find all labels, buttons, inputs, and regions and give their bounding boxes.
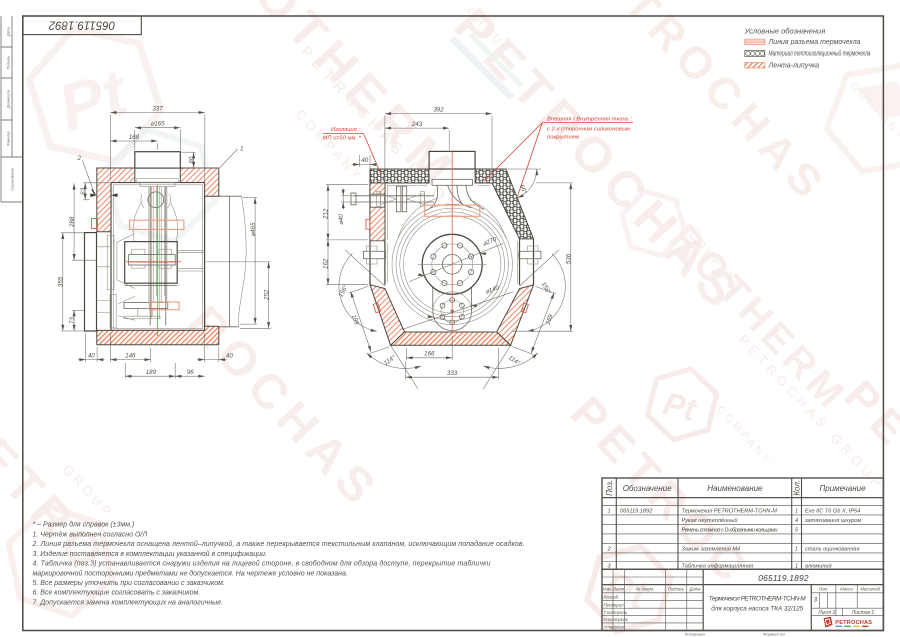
svg-text:7. Допускается замена комплект: 7. Допускается замена комплектующих на а… [33, 599, 224, 606]
svg-text:Наименование: Наименование [707, 484, 763, 493]
svg-text:Масса: Масса [840, 587, 853, 592]
svg-text:212: 212 [323, 208, 330, 220]
svg-text:Утвердил: Утвердил [604, 625, 625, 630]
svg-text:96: 96 [187, 369, 194, 376]
svg-text:покрытием: покрытием [547, 135, 579, 141]
svg-text:1. Чертёж выполнен согласно О/: 1. Чертёж выполнен согласно О/Л [33, 531, 148, 538]
svg-text:с 2-х сторонним силиконовым: с 2-х сторонним силиконовым [547, 127, 630, 133]
svg-text:⌀165: ⌀165 [150, 121, 165, 128]
svg-text:Разраб.: Разраб. [604, 595, 620, 600]
svg-text:Внешняя / Внутренняя ткань :: Внешняя / Внутренняя ткань : [547, 117, 632, 123]
svg-text:065119.1892: 065119.1892 [48, 18, 115, 30]
svg-text:3. Изделие поставляется в комп: 3. Изделие поставляется в комплектации у… [33, 550, 267, 558]
svg-text:Термочехол PETROTHERM-TCHN-M: Термочехол PETROTHERM-TCHN-M [682, 509, 778, 515]
svg-text:146: 146 [125, 352, 136, 359]
svg-text:065119.1892: 065119.1892 [620, 509, 653, 515]
svg-text:Лист: Лист [612, 586, 624, 591]
svg-text:Обозначение: Обозначение [623, 484, 673, 493]
svg-text:Согласование: Согласование [11, 168, 15, 191]
svg-text:Ехе IIС Т6 Gb X, IP54: Ехе IIС Т6 Gb X, IP54 [805, 509, 860, 515]
svg-text:40: 40 [88, 352, 95, 359]
svg-text:189: 189 [146, 369, 157, 376]
svg-text:5. Все размеры уточнить при со: 5. Все размеры уточнить при согласовании… [33, 580, 225, 587]
svg-text:2: 2 [77, 155, 82, 162]
svg-text:252: 252 [263, 289, 270, 301]
svg-text:Дата: Дата [688, 586, 701, 591]
svg-text:затягивания шнуром: затягивания шнуром [804, 518, 861, 524]
svg-text:168: 168 [129, 134, 140, 141]
svg-text:Проверил: Проверил [604, 602, 625, 607]
svg-text:065119.1892: 065119.1892 [758, 573, 809, 583]
svg-text:333: 333 [447, 370, 458, 377]
svg-text:392: 392 [433, 106, 444, 113]
svg-text:Лента-липучка: Лента-липучка [768, 62, 820, 69]
svg-text:2. Линия разъема термочехла ос: 2. Линия разъема термочехла оснащена лен… [32, 540, 525, 548]
svg-text:Должность: Должность [6, 90, 10, 110]
svg-text:для корпуса насоса ТКА 32/125: для корпуса насоса ТКА 32/125 [711, 604, 803, 612]
svg-text:243: 243 [411, 121, 423, 128]
svg-text:Материал теплоизоляционный тер: Материал теплоизоляционный термочехла [769, 50, 871, 58]
svg-text:40: 40 [361, 157, 368, 164]
svg-text:1: 1 [607, 509, 610, 515]
svg-text:Поз.: Поз. [605, 480, 614, 496]
svg-text:60: 60 [188, 156, 195, 163]
svg-text:сталь оцинкованная: сталь оцинкованная [805, 547, 860, 553]
svg-text:Линия разъема термочехла: Линия разъема термочехла [768, 39, 861, 46]
svg-text:маркировочной посторонними пре: маркировочной посторонними предметами не… [33, 569, 348, 577]
svg-text:Примечание: Примечание [819, 484, 866, 493]
svg-text:166: 166 [424, 351, 435, 358]
svg-text:Лит.: Лит. [818, 587, 829, 592]
svg-text:73: 73 [69, 317, 76, 324]
svg-text:6. Все комплектующие согласова: 6. Все комплектующие согласовать с заказ… [33, 590, 201, 597]
svg-text:* – Размер для справок (±3мм.): * – Размер для справок (±3мм.) [33, 521, 135, 529]
svg-text:Лист 1: Лист 1 [817, 610, 835, 616]
svg-text:Масштаб: Масштаб [861, 587, 881, 592]
svg-text:Кол.: Кол. [793, 480, 802, 496]
svg-text:МП s=50 мм. *: МП s=50 мм. * [323, 136, 362, 142]
svg-text:№ докум.: № докум. [636, 586, 654, 591]
svg-text:337: 337 [152, 105, 163, 112]
svg-text:288: 288 [69, 216, 76, 228]
svg-text:⌀465: ⌀465 [250, 222, 257, 237]
svg-text:4: 4 [795, 518, 798, 524]
svg-text:Изоляция :: Изоляция : [331, 127, 360, 133]
svg-text:Изм.: Изм. [603, 586, 612, 591]
svg-text:Подпись: Подпись [6, 56, 10, 70]
svg-text:Зажим заземления М4: Зажим заземления М4 [682, 547, 741, 553]
svg-text:162: 162 [323, 258, 330, 269]
svg-text:1: 1 [795, 547, 798, 553]
svg-text:Рукав неутеплённый: Рукав неутеплённый [682, 517, 738, 524]
svg-text:PETROCHAS: PETROCHAS [835, 620, 872, 626]
svg-text:Ремень стяжной с D-образными к: Ремень стяжной с D-образными кольцами [682, 527, 778, 534]
svg-text:Фамилия: Фамилия [6, 131, 10, 146]
svg-text:Условные обозначения: Условные обозначения [744, 27, 826, 36]
svg-text:Копировал: Копировал [685, 632, 706, 637]
svg-text:536: 536 [565, 253, 572, 264]
svg-text:40: 40 [226, 352, 233, 359]
svg-text:355: 355 [58, 276, 65, 287]
svg-text:Листов 1: Листов 1 [851, 610, 875, 616]
svg-text:63: 63 [80, 187, 87, 194]
svg-text:Н.контроль: Н.контроль [604, 617, 629, 622]
svg-text:4. Табличка (поз.3) устанавлив: 4. Табличка (поз.3) устанавливается снар… [33, 560, 491, 568]
svg-text:Дата: Дата [6, 27, 10, 37]
svg-text:алюминий: алюминий [805, 563, 832, 570]
svg-text:⌀40: ⌀40 [338, 214, 345, 225]
svg-text:Формат А2: Формат А2 [763, 632, 786, 637]
svg-text:1: 1 [795, 509, 798, 515]
svg-text:Термочехол PETROTHERM-TCHN-M: Термочехол PETROTHERM-TCHN-M [709, 595, 807, 602]
svg-text:1: 1 [240, 146, 243, 153]
svg-text:Подпись: Подпись [668, 586, 685, 591]
svg-text:Т.контроль: Т.контроль [604, 610, 628, 615]
